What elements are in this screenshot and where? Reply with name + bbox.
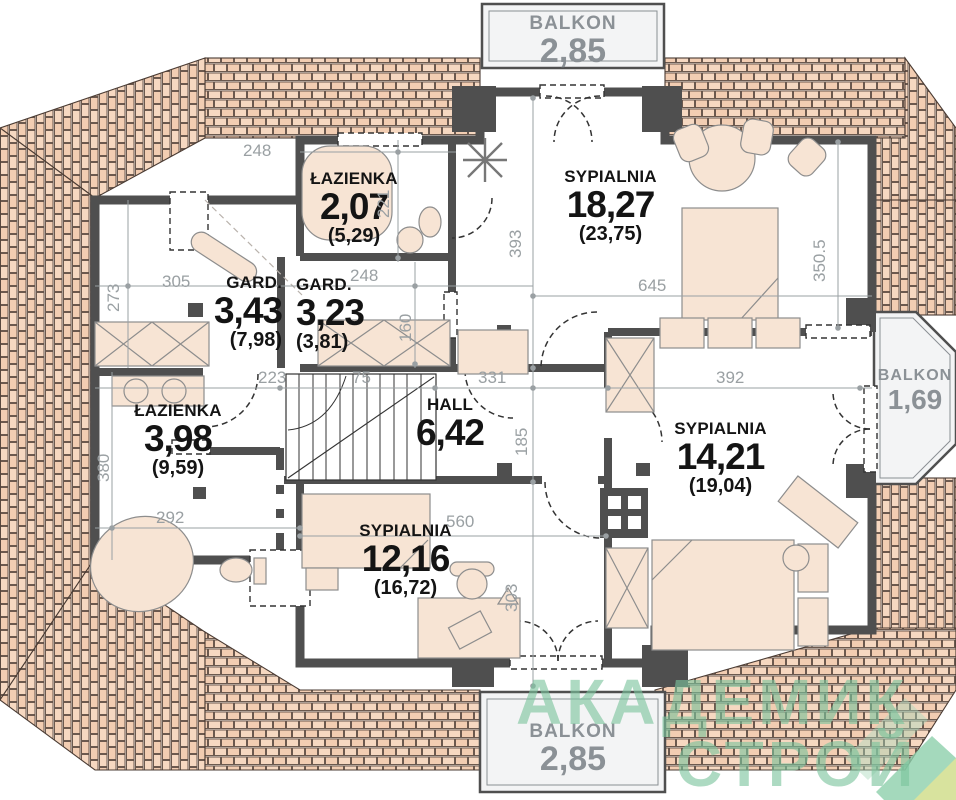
- cistern: [254, 558, 266, 584]
- roof-band-right-upper: [872, 200, 956, 315]
- toilet-top: [419, 207, 441, 237]
- window-top-bath: [338, 133, 422, 146]
- balcony-door-bottom: [510, 656, 602, 669]
- roof-band-right-lower: [872, 478, 956, 630]
- floor-plan: ŁAZIENKA 2,07 (5,29) SYPIALNIA 18,27 (23…: [0, 0, 956, 800]
- balcony-top: [482, 4, 664, 68]
- balcony-right: [874, 312, 956, 484]
- nightstand: [660, 318, 704, 348]
- nightstand: [798, 598, 828, 646]
- stairs: [286, 374, 436, 480]
- chair-seat: [457, 569, 487, 599]
- cabinet-hall: [458, 330, 528, 374]
- nightstand: [756, 318, 800, 348]
- sink-left: [162, 379, 186, 403]
- sink-left: [124, 379, 148, 403]
- toilet-left: [220, 558, 252, 582]
- plan-drawing: [0, 0, 956, 800]
- balcony-bottom: [480, 692, 665, 792]
- bed-top: [682, 208, 778, 320]
- roof-band-top-right: [665, 58, 905, 138]
- sink-top: [397, 227, 423, 253]
- chair: [739, 118, 774, 157]
- bathtub-top: [302, 146, 392, 240]
- nightstand: [306, 568, 338, 590]
- window-bath-left: [172, 440, 210, 454]
- stool: [783, 545, 809, 571]
- plant-icon: [463, 138, 507, 182]
- nightstand: [708, 318, 752, 348]
- chimney: [600, 488, 648, 538]
- roof-band-top-left: [205, 58, 480, 138]
- bed-right: [652, 540, 794, 650]
